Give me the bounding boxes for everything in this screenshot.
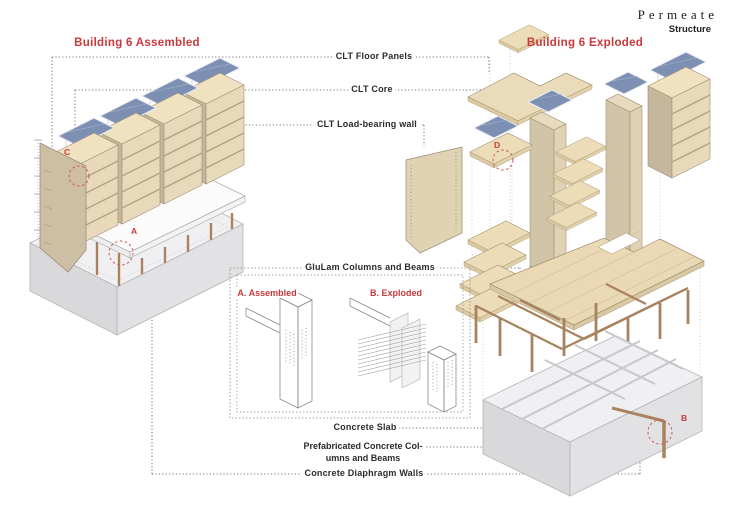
callout-c: C xyxy=(64,147,70,157)
callout-a: A xyxy=(131,226,137,236)
label-precast-line2: umns and Beams xyxy=(303,452,422,464)
label-detail-exploded: B. Exploded xyxy=(368,288,424,298)
label-glulam-columns-beams: GluLam Columns and Beams xyxy=(302,262,438,272)
label-clt-load-bearing-wall: CLT Load-bearing wall xyxy=(314,119,420,129)
label-clt-core: CLT Core xyxy=(348,84,395,94)
label-precast-line1: Prefabricated Concrete Col- xyxy=(303,440,422,452)
sheet-subtitle: Structure xyxy=(669,24,711,35)
label-detail-assembled: A. Assembled xyxy=(235,288,298,298)
label-precast-columns-beams: Prefabricated Concrete Col- umns and Bea… xyxy=(300,440,425,464)
detail-a-drawing xyxy=(246,291,312,408)
label-concrete-diaphragm-walls: Concrete Diaphragm Walls xyxy=(302,468,427,478)
callout-d: D xyxy=(494,140,500,150)
assembled-view-title: Building 6 Assembled xyxy=(74,37,200,49)
brand-title: Permeate xyxy=(638,7,718,23)
label-clt-floor-panels: CLT Floor Panels xyxy=(333,51,416,61)
exploded-axonometric xyxy=(406,25,710,496)
exploded-view-title: Building 6 Exploded xyxy=(527,37,643,49)
diagram-canvas xyxy=(0,0,730,516)
drawing-sheet: Permeate Structure Building 6 Assembled … xyxy=(0,0,730,516)
assembled-axonometric xyxy=(30,58,245,335)
detail-b-drawing xyxy=(350,298,456,412)
callout-b: B xyxy=(681,413,687,423)
label-concrete-slab: Concrete Slab xyxy=(330,422,399,432)
